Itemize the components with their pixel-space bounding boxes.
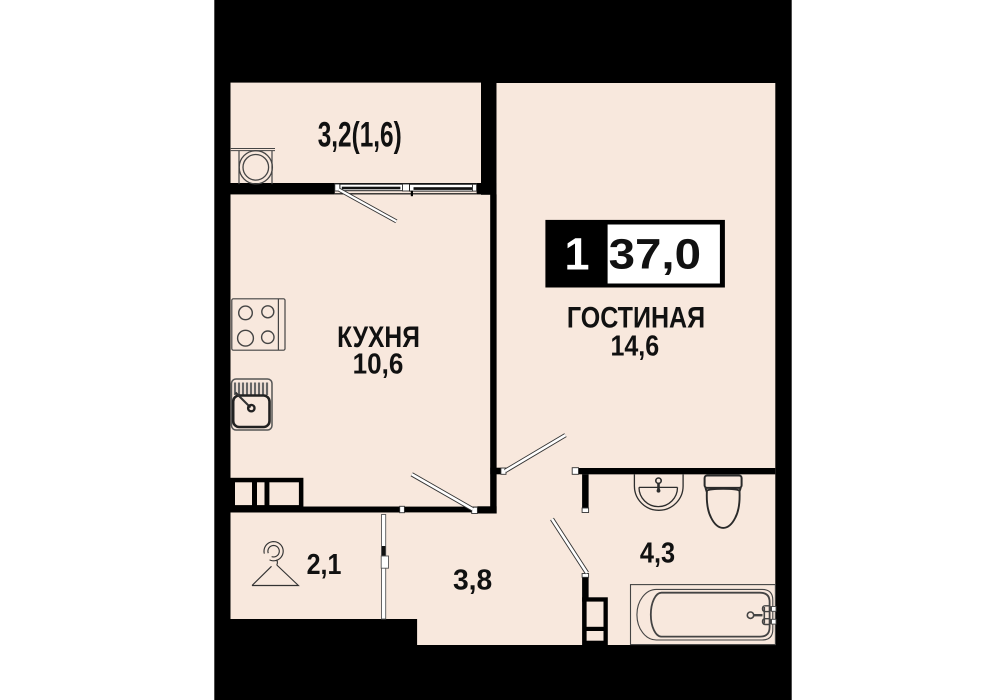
svg-text:37,0: 37,0 bbox=[609, 232, 701, 279]
svg-text:1: 1 bbox=[564, 229, 589, 280]
svg-text:10,6: 10,6 bbox=[353, 348, 404, 380]
svg-text:3,2(1,6): 3,2(1,6) bbox=[318, 115, 402, 154]
svg-text:14,6: 14,6 bbox=[610, 330, 659, 362]
svg-text:2,1: 2,1 bbox=[307, 549, 342, 581]
svg-text:3,8: 3,8 bbox=[453, 565, 492, 597]
svg-text:4,3: 4,3 bbox=[640, 537, 675, 569]
